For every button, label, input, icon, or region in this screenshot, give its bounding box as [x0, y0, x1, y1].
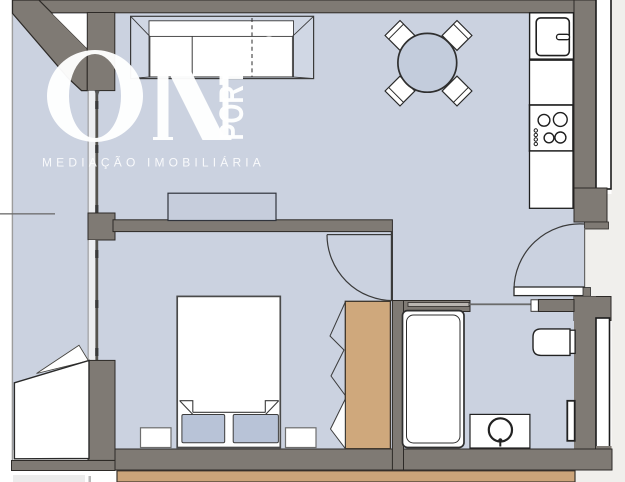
svg-text:MEDIAÇÃO IMOBILIÁRIA: MEDIAÇÃO IMOBILIÁRIA: [42, 157, 265, 170]
svg-text:PORT: PORT: [213, 69, 251, 140]
